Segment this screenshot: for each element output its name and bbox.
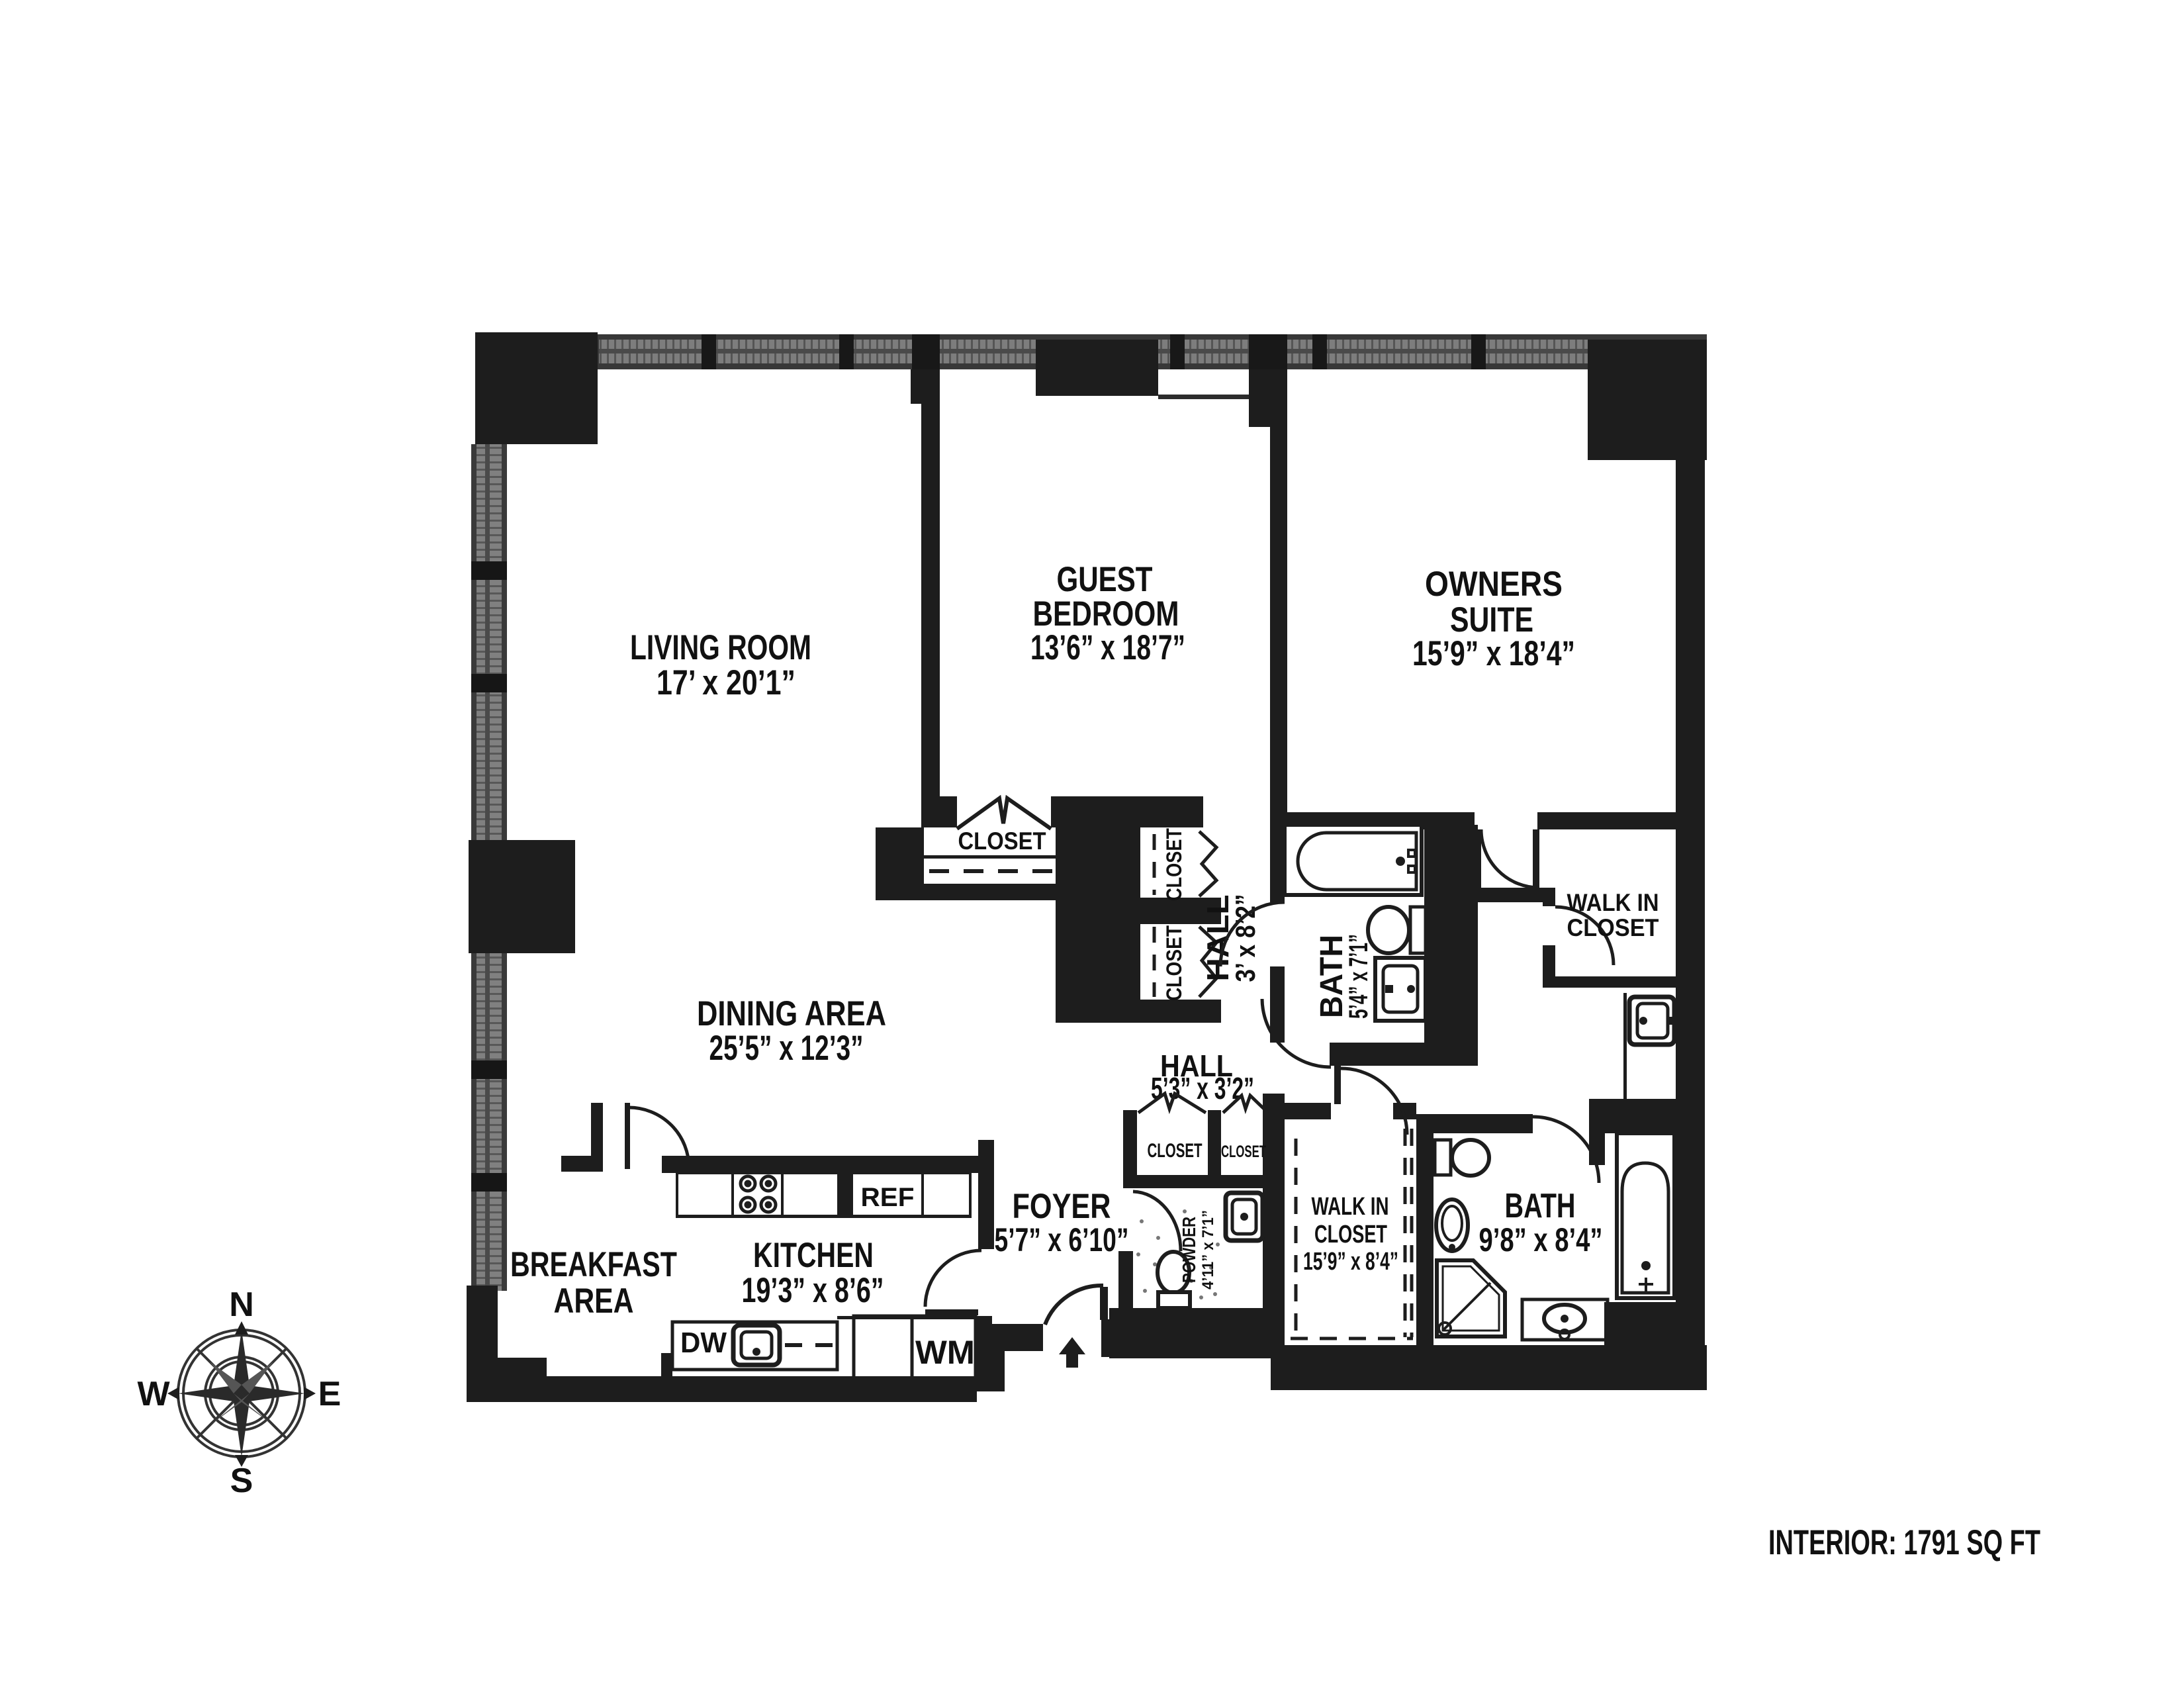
svg-text:CLOSET: CLOSET: [1162, 828, 1186, 901]
svg-text:4’11” x 7’1”: 4’11” x 7’1”: [1199, 1210, 1217, 1289]
svg-text:LIVING ROOM: LIVING ROOM: [630, 628, 811, 667]
svg-text:INTERIOR: 1791 SQ FT: INTERIOR: 1791 SQ FT: [1768, 1523, 2040, 1562]
svg-text:WALK IN: WALK IN: [1567, 889, 1659, 916]
svg-text:FOYER: FOYER: [1013, 1187, 1111, 1226]
svg-text:CLOSET: CLOSET: [1567, 914, 1659, 941]
svg-text:DINING AREA: DINING AREA: [697, 994, 886, 1033]
svg-text:25’5” x 12’3”: 25’5” x 12’3”: [709, 1029, 864, 1068]
svg-text:5’7” x 6’10”: 5’7” x 6’10”: [995, 1221, 1129, 1258]
svg-text:CLOSET: CLOSET: [1148, 1140, 1203, 1162]
svg-text:N: N: [229, 1286, 254, 1324]
svg-text:AREA: AREA: [554, 1282, 634, 1321]
svg-text:9’8” x 8’4”: 9’8” x 8’4”: [1479, 1221, 1603, 1258]
svg-text:KITCHEN: KITCHEN: [753, 1236, 874, 1275]
svg-text:CLOSET: CLOSET: [1221, 1143, 1266, 1161]
svg-text:15’9” x 8’4”: 15’9” x 8’4”: [1303, 1248, 1398, 1276]
svg-text:CLOSET: CLOSET: [1314, 1221, 1387, 1248]
svg-text:17’ x 20’1”: 17’ x 20’1”: [657, 663, 796, 702]
svg-text:DW: DW: [680, 1327, 727, 1359]
svg-text:5’4” x 7’1”: 5’4” x 7’1”: [1344, 934, 1373, 1019]
svg-text:WM: WM: [915, 1334, 975, 1371]
svg-text:BATH: BATH: [1505, 1187, 1576, 1225]
svg-text:S: S: [230, 1462, 253, 1500]
svg-text:CLOSET: CLOSET: [958, 827, 1046, 855]
svg-text:19’3” x 8’6”: 19’3” x 8’6”: [742, 1271, 884, 1310]
svg-text:POWDER: POWDER: [1179, 1217, 1199, 1283]
svg-text:WALK IN: WALK IN: [1312, 1193, 1389, 1221]
svg-text:CLOSET: CLOSET: [1162, 925, 1186, 1001]
svg-text:W: W: [137, 1375, 170, 1413]
svg-text:REF: REF: [861, 1183, 915, 1212]
svg-text:E: E: [318, 1375, 341, 1413]
svg-text:BREAKFAST: BREAKFAST: [510, 1245, 677, 1284]
svg-text:13’6” x 18’7”: 13’6” x 18’7”: [1030, 628, 1185, 667]
svg-text:15’9” x 18’4”: 15’9” x 18’4”: [1412, 634, 1575, 673]
svg-text:OWNERS: OWNERS: [1425, 565, 1563, 604]
svg-text:GUEST: GUEST: [1057, 560, 1153, 599]
